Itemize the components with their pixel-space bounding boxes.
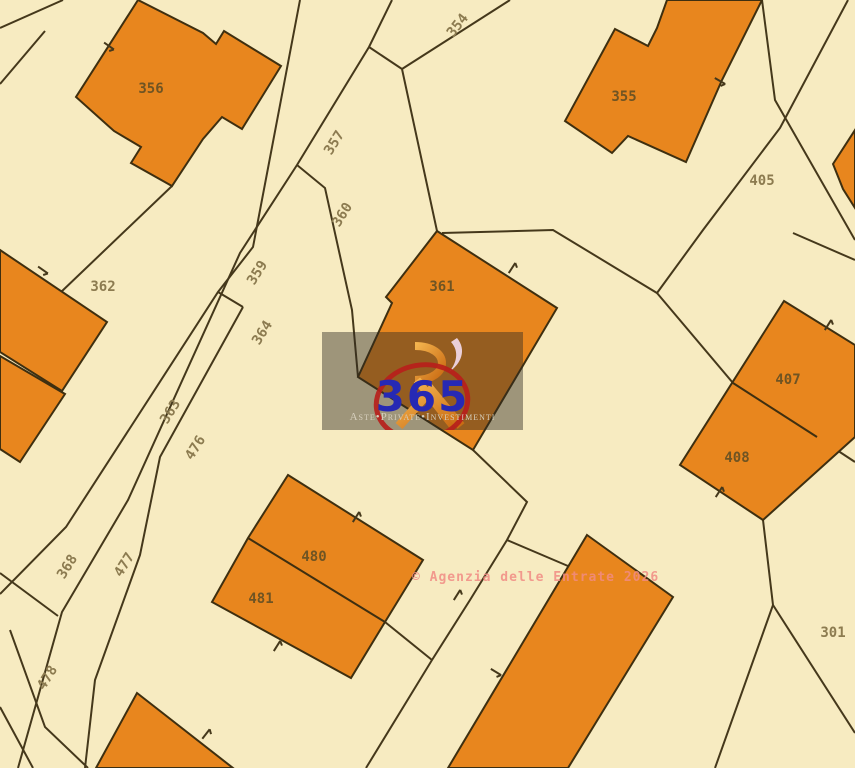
parcel-label-481: 481 — [248, 591, 273, 607]
parcel-label-355: 355 — [611, 89, 636, 105]
parcel-label-361: 361 — [429, 279, 454, 295]
parcel-label-362: 362 — [90, 279, 115, 295]
parcel-label-407: 407 — [775, 372, 800, 388]
watermark: 365 Aste•Private•Investimenti — [322, 332, 523, 430]
parcel-label-480: 480 — [301, 549, 326, 565]
parcel-label-405: 405 — [749, 173, 774, 189]
map-viewport[interactable]: 3563543573603593643623634763684774783613… — [0, 0, 855, 768]
parcel-label-301: 301 — [820, 625, 845, 641]
parcel-label-408: 408 — [724, 450, 749, 466]
copyright-text: © Agenzia delle Entrate 2026 — [412, 570, 659, 585]
watermark-tagline: Aste•Private•Investimenti — [314, 411, 531, 423]
parcel-label-356: 356 — [138, 81, 163, 97]
